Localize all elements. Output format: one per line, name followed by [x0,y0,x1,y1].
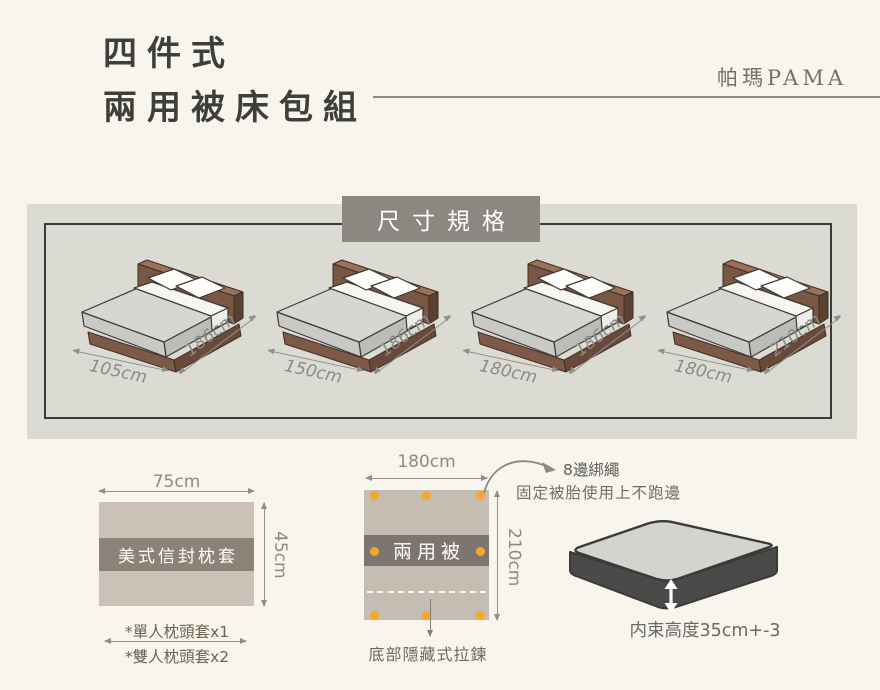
header-divider-line [373,96,880,98]
bed-size-4: 180cm 210cm [655,258,850,423]
quilt-height-label: 210cm [504,528,524,586]
bed-size-1: 105cm 186cm [70,258,265,423]
pillowcase-name-band: 美式信封枕套 [99,538,254,571]
brand-name: 帕瑪PAMA [717,62,847,92]
quilt-zipper-dashed-line [367,591,486,593]
bed-size-3: 180cm 186cm [460,258,655,423]
pillow-height-label: 45cm [270,531,290,579]
quilt-tie-label: 8邊綁繩 [563,458,619,480]
tie-dot [422,491,431,500]
quilt-name-band: 兩用被 [364,535,489,566]
pillow-height-arrow [264,503,265,606]
page-title-line2: 兩用被床包組 [103,88,367,129]
mattress-illustration-icon [552,512,784,618]
page-title-line1: 四件式 [103,34,235,75]
tie-dot [370,547,379,556]
pillow-width-label: 75cm [99,472,254,492]
quilt-height-arrow [497,491,498,620]
tie-dot [370,611,379,620]
tie-dot [370,491,379,500]
pillowcase-diagram: 美式信封枕套 [99,502,254,606]
quilt-zipper-pointer-arrow [430,599,431,636]
quilt-width-arrow [366,478,487,479]
quilt-zipper-note: 底部隱藏式拉鍊 [348,641,508,665]
section-heading-size-spec: 尺寸規格 [342,196,540,242]
tie-dot [476,547,485,556]
bed-size-2: 150cm 186cm [265,258,460,423]
pillow-note-arrow [105,641,246,642]
quilt-tie-note: 固定被胎使用上不跑邊 [516,481,681,503]
pillow-width-arrow [99,491,254,492]
mattress-height-note: 内束高度35cm+-3 [620,617,790,642]
pillow-note-double: *雙人枕頭套x2 [87,645,267,667]
quilt-diagram: 兩用被 [364,490,489,620]
quilt-width-label: 180cm [364,452,489,472]
tie-dot [476,611,485,620]
